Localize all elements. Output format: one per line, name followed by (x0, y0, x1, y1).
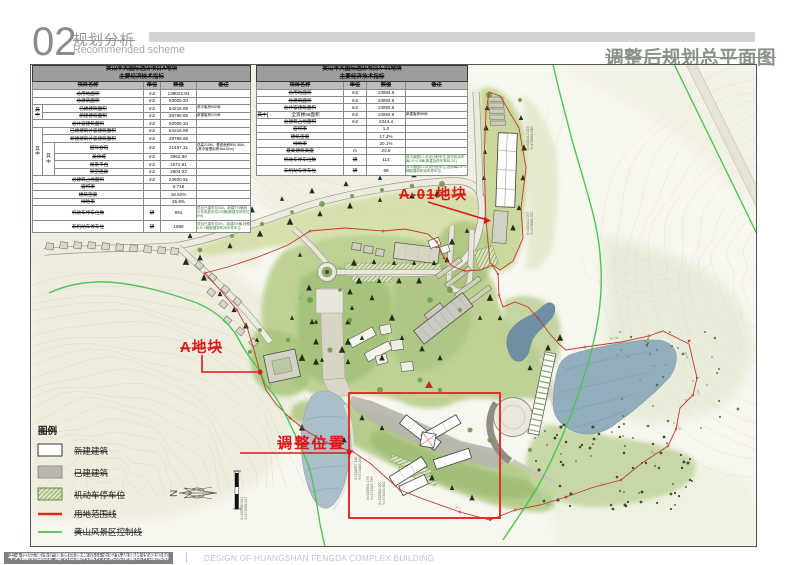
svg-text:机动车停车位: 机动车停车位 (74, 490, 126, 500)
svg-text:黄山风景区控制线: 黄山风景区控制线 (74, 527, 143, 537)
svg-text:已建建筑: 已建建筑 (74, 468, 109, 478)
svg-text:Y=474835.902: Y=474835.902 (382, 482, 386, 505)
svg-text:新建建筑: 新建建筑 (74, 446, 109, 456)
svg-text:Y=475050.787: Y=475050.787 (530, 212, 534, 235)
svg-text:N: N (169, 490, 180, 497)
svg-text:Y=475002.080: Y=475002.080 (530, 127, 534, 150)
svg-text:Y=474838.417: Y=474838.417 (244, 497, 248, 520)
svg-text:25.1: 25.1 (696, 390, 701, 396)
svg-text:Y=474815.769: Y=474815.769 (370, 477, 374, 500)
svg-text:Y=474885.180: Y=474885.180 (358, 457, 362, 480)
svg-text:用地范围线: 用地范围线 (74, 509, 117, 519)
svg-text:38.9: 38.9 (545, 502, 551, 507)
svg-text:A-01地块: A-01地块 (399, 185, 467, 203)
svg-text:图例: 图例 (38, 425, 57, 437)
svg-text:A地块: A地块 (180, 338, 223, 356)
